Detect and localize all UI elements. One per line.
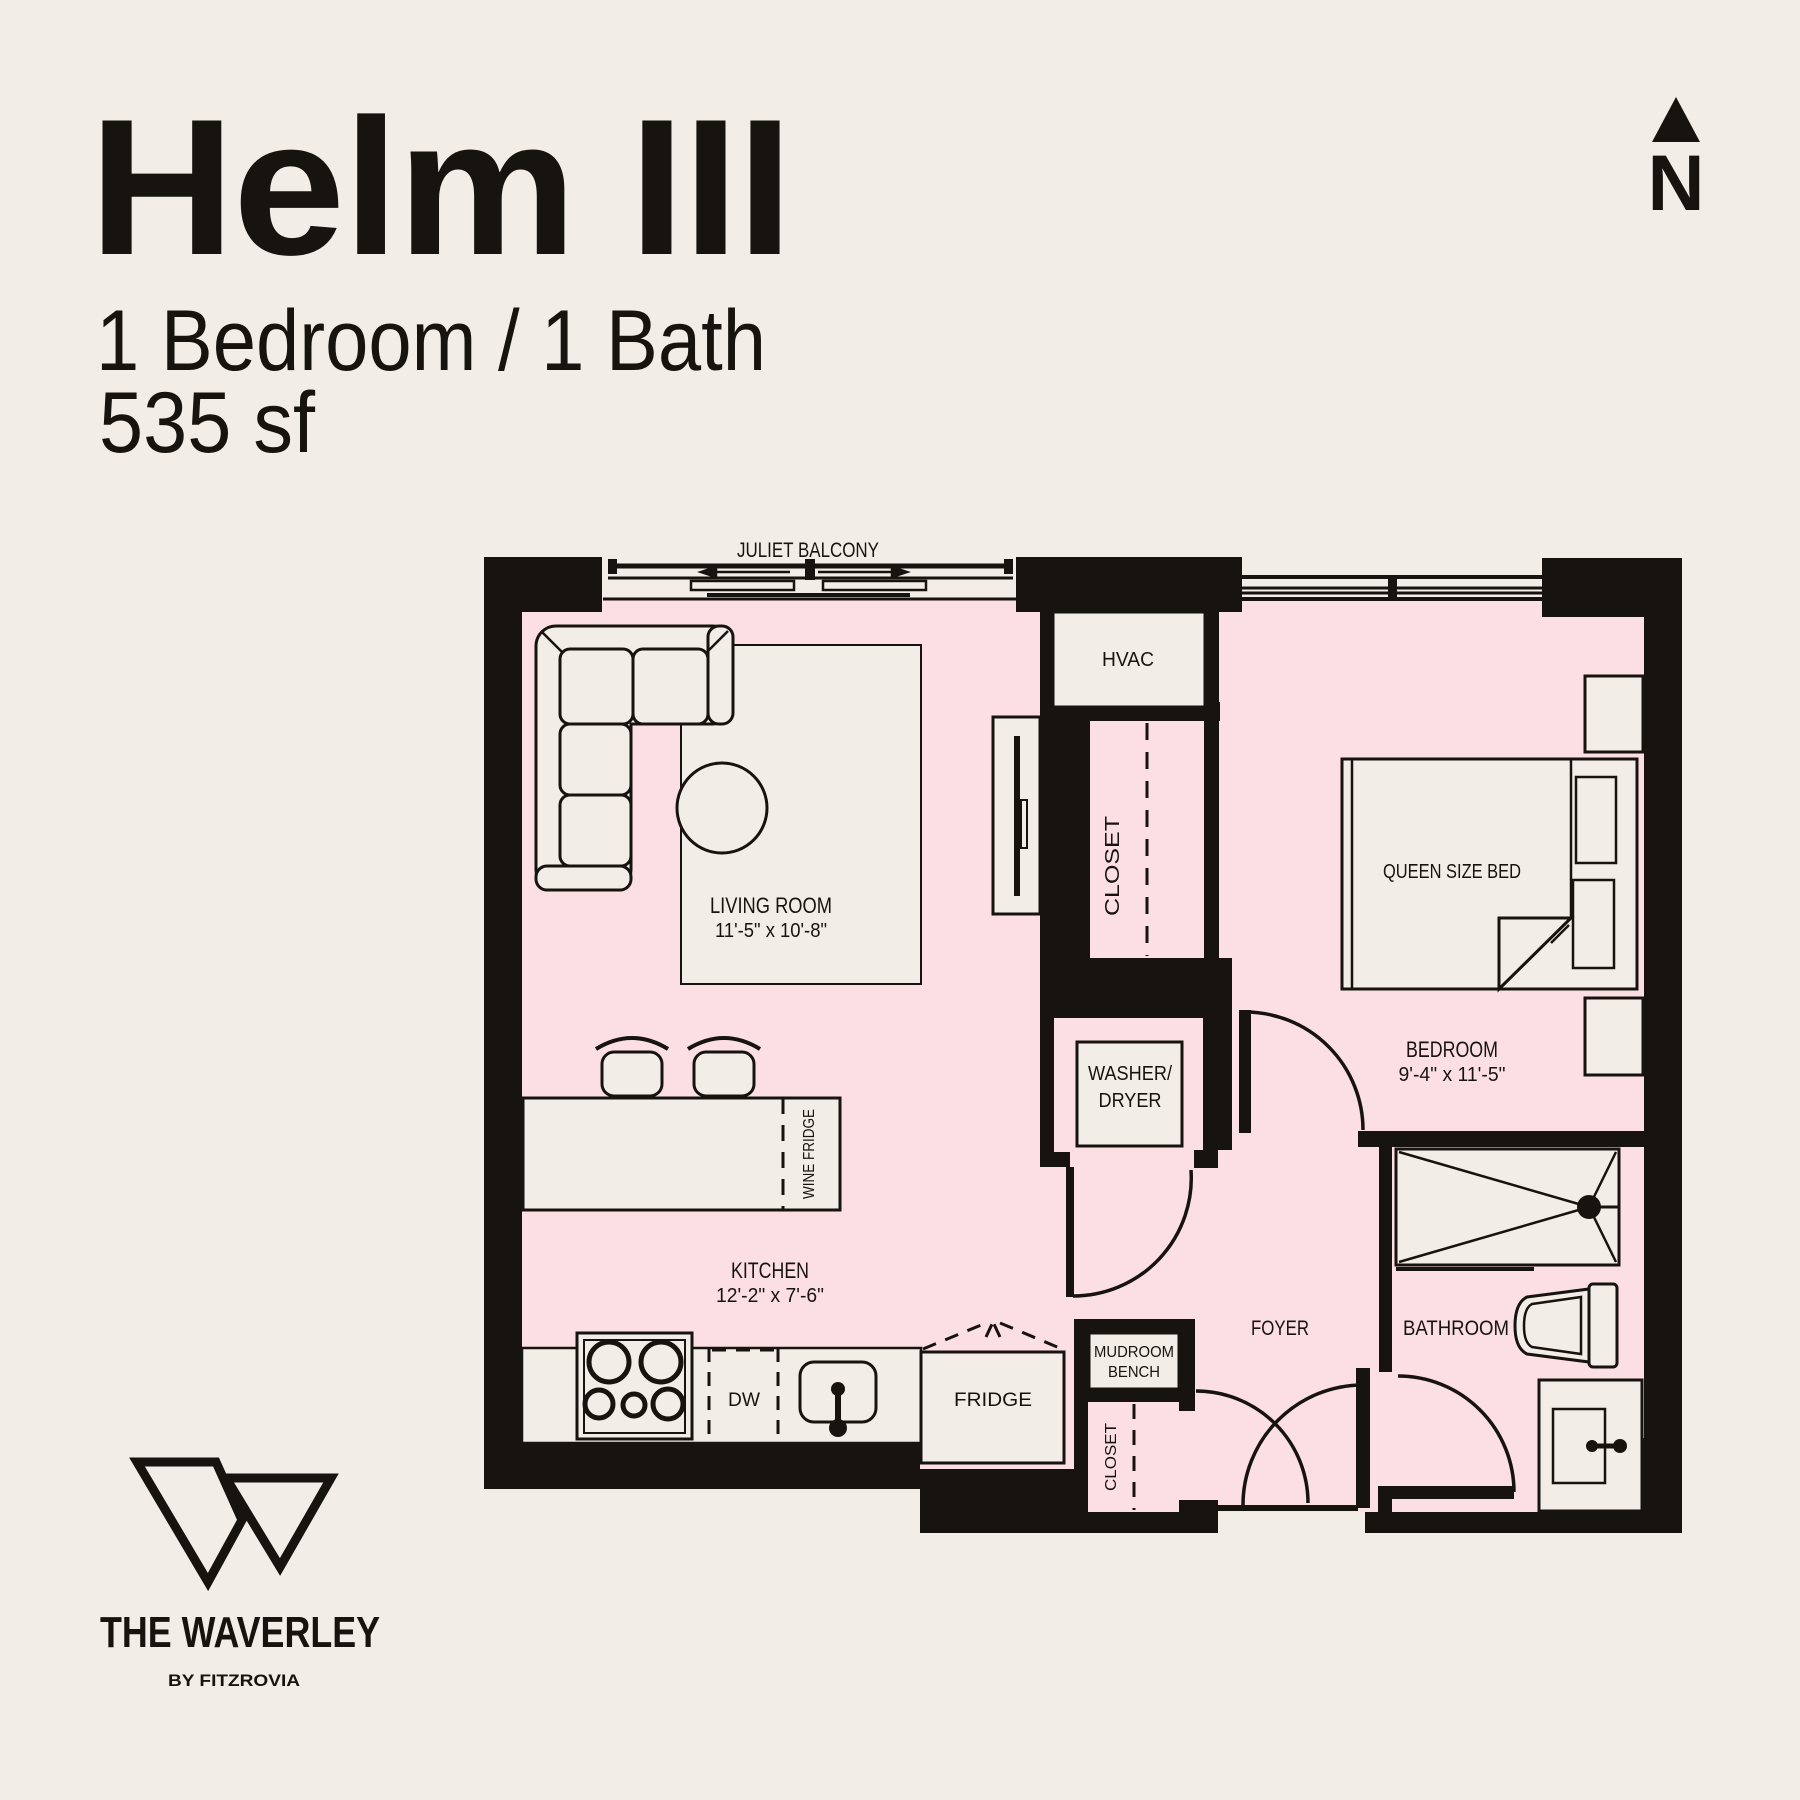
svg-text:MUDROOM: MUDROOM [1094, 1344, 1174, 1361]
svg-text:JULIET BALCONY: JULIET BALCONY [737, 539, 879, 562]
svg-text:HVAC: HVAC [1102, 649, 1154, 671]
svg-text:CLOSET: CLOSET [1102, 816, 1124, 916]
svg-text:KITCHEN: KITCHEN [731, 1258, 809, 1283]
svg-text:THE WAVERLEY: THE WAVERLEY [100, 1608, 380, 1657]
svg-text:WINE FRIDGE: WINE FRIDGE [801, 1109, 818, 1199]
svg-text:BY FITZROVIA: BY FITZROVIA [168, 1671, 300, 1690]
svg-text:Helm III: Helm III [89, 79, 791, 296]
svg-text:11'-5" x 10'-8": 11'-5" x 10'-8" [715, 920, 827, 942]
svg-text:DW: DW [728, 1390, 760, 1411]
svg-text:BENCH: BENCH [1108, 1364, 1160, 1381]
svg-text:DRYER: DRYER [1099, 1090, 1162, 1112]
svg-text:FRIDGE: FRIDGE [954, 1390, 1032, 1411]
svg-text:LIVING ROOM: LIVING ROOM [710, 893, 832, 918]
svg-text:9'-4" x 11'-5": 9'-4" x 11'-5" [1399, 1064, 1506, 1086]
svg-text:BATHROOM: BATHROOM [1403, 1317, 1509, 1340]
svg-text:QUEEN SIZE BED: QUEEN SIZE BED [1383, 861, 1521, 883]
svg-text:N: N [1647, 138, 1704, 227]
svg-text:BEDROOM: BEDROOM [1406, 1037, 1498, 1062]
svg-text:535 sf: 535 sf [99, 375, 316, 471]
svg-text:WASHER/: WASHER/ [1088, 1063, 1172, 1085]
svg-text:12'-2" x 7'-6": 12'-2" x 7'-6" [716, 1285, 824, 1307]
svg-text:FOYER: FOYER [1251, 1317, 1309, 1340]
svg-text:CLOSET: CLOSET [1103, 1423, 1120, 1491]
